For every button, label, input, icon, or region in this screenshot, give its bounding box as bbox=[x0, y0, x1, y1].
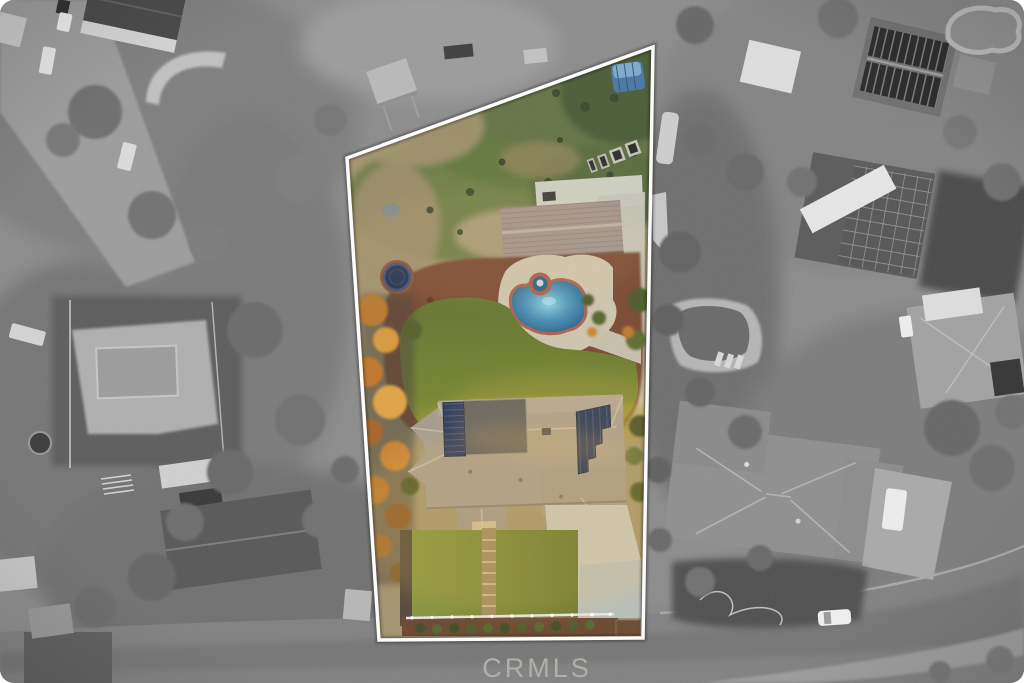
aerial-scene: CRMLS bbox=[0, 0, 1024, 683]
vignette bbox=[0, 0, 1024, 683]
aerial-photo: CRMLS bbox=[0, 0, 1024, 683]
crmls-watermark: CRMLS bbox=[482, 653, 592, 683]
